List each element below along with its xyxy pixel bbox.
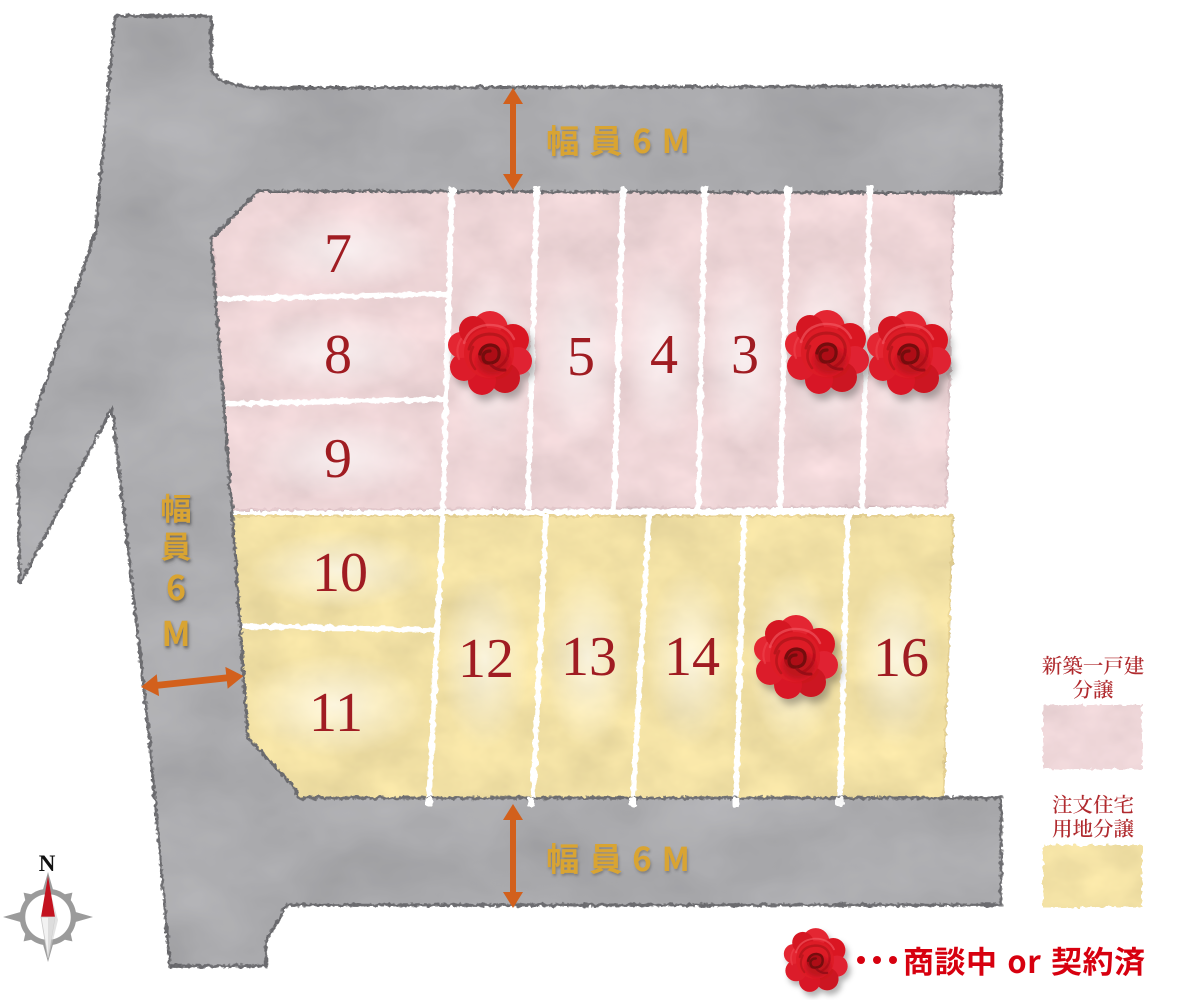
- svg-text:3: 3: [731, 324, 759, 386]
- svg-text:13: 13: [561, 626, 617, 688]
- svg-text:N: N: [39, 851, 56, 876]
- svg-text:16: 16: [873, 627, 929, 689]
- svg-text:14: 14: [664, 626, 720, 688]
- svg-text:10: 10: [312, 542, 368, 604]
- svg-text:7: 7: [324, 223, 352, 285]
- svg-text:5: 5: [567, 326, 595, 388]
- svg-text:12: 12: [458, 628, 514, 690]
- svg-text:4: 4: [650, 324, 678, 386]
- svg-text:8: 8: [324, 324, 352, 386]
- svg-text:9: 9: [324, 428, 352, 490]
- svg-text:11: 11: [309, 682, 363, 744]
